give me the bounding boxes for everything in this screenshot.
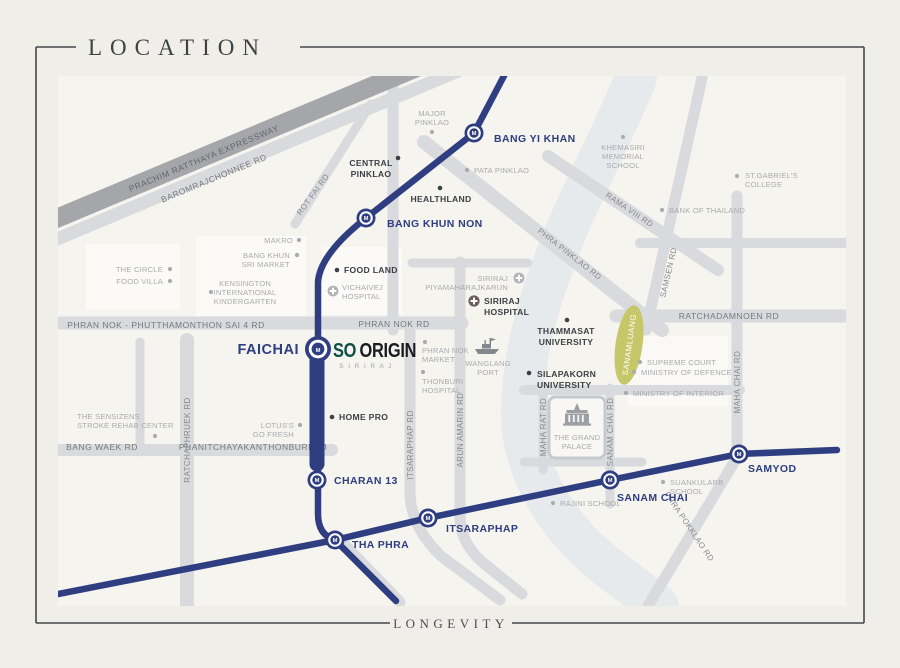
poi-dot [330,415,335,420]
poi-dot [396,156,401,161]
poi-label: FOOD VILLA [116,277,163,286]
hospital-icon [328,286,339,297]
poi-label: INTERNATIONAL [214,288,277,297]
poi-label: THAMMASAT [537,326,595,336]
poi-label: BANG KHUN [243,251,290,260]
poi-label: MAKRO [264,236,293,245]
poi-dot [295,253,299,257]
station-m: M [472,131,477,137]
poi-dot [153,434,157,438]
station-label: BANG KHUN NON [387,218,483,230]
poi-ministry-defence: MINISTRY OF DEFENCE [632,368,732,377]
poi-label: SUPREME COURT [647,358,716,367]
footer-label: LONGEVITY [393,616,509,631]
poi-dot [661,480,665,484]
poi-label: THE SENSIZENS [77,412,140,421]
poi-dot [660,208,664,212]
poi-label: UNIVERSITY [539,337,594,347]
poi-dot [438,186,443,191]
grand-palace-landmark: THE GRAND PALACE [549,397,605,458]
poi-label: SIRIRAJ [484,296,520,306]
station-label: SAMYOD [748,463,797,475]
hospital-icon [514,273,525,284]
logo-brand: SO [333,338,356,361]
poi-label: GO FRESH [253,430,294,439]
poi-label: PINKLAO [351,169,392,179]
poi-label: WANGLANG [465,359,511,368]
poi-rajini: RAJINI SCHOOL [551,499,621,508]
poi-label: HOSPITAL [342,292,381,301]
poi-dot [624,391,628,395]
poi-label: KINDERGARTEN [214,297,277,306]
station-m: M [608,478,613,484]
poi-dot [527,371,532,376]
station-label: BANG YI KHAN [494,133,576,145]
page-title: LOCATION [88,35,267,60]
poi-dot [297,238,301,242]
sanam-chai-rd-label: SANAM CHAI RD [606,398,615,467]
poi-dot [735,174,739,178]
poi-dot [638,360,642,364]
station-m: M [315,478,320,484]
poi-label: MARKET [422,355,455,364]
poi-label: VICHAIVEJ [342,283,383,292]
svg-text:SOORIGIN: SOORIGIN [333,338,416,361]
poi-label: COLLEGE [745,180,782,189]
poi-label: SCHOOL [670,487,703,496]
poi-silapakorn: SILAPAKORN UNIVERSITY [527,369,596,390]
poi-dot [551,501,555,505]
poi-label: ST.GABRIEL'S [745,171,798,180]
poi-dot [421,370,425,374]
grand-palace-label: THE GRAND [554,433,601,442]
poi-label: HOSPITAL [484,307,529,317]
poi-label: RAJINI SCHOOL [560,499,621,508]
phran-nok-label: PHRAN NOK RD [358,319,429,329]
station-label: THA PHRA [352,539,409,551]
poi-label: HOSPITAL [422,386,461,395]
poi-label: STROKE REHAB CENTER [77,421,174,430]
poi-kensington: KENSINGTON INTERNATIONAL KINDERGARTEN [209,279,276,306]
poi-label: MINISTRY OF INTERIOR [633,389,724,398]
ratchaphruek-label: RATCHAPHRUEK RD [183,397,192,482]
poi-label: BANK OF THAILAND [669,206,745,215]
maha-rat-label: MAHA RAT RD [539,398,548,456]
station-m: M [333,538,338,544]
poi-food-land: FOOD LAND [335,265,398,275]
poi-label: PATA PINKLAO [474,166,529,175]
poi-ministry-interior: MINISTRY OF INTERIOR [624,389,724,398]
poi-label: SCHOOL [606,161,639,170]
poi-label: UNIVERSITY [537,380,592,390]
phanitchayakanthonburi-label: PHANITCHAYAKANTHONBURI RD [179,442,327,452]
poi-dot [209,290,213,294]
poi-dot [168,267,172,271]
poi-label: PINKLAO [415,118,449,127]
poi-label: PIYAMAHARAJKARUN [425,283,508,292]
poi-label: MINISTRY OF DEFENCE [641,368,732,377]
grand-palace-label: PALACE [562,442,593,451]
poi-bank-of-thailand: BANK OF THAILAND [660,206,745,215]
poi-label: SILAPAKORN [537,369,596,379]
logo-brand2: ORIGIN [359,338,416,361]
poi-label: HEALTHLAND [410,194,471,204]
itsaraphap-rd-label: ITSARAPHAP RD [406,410,415,480]
poi-dot [565,318,570,323]
poi-dot [621,135,625,139]
station-label: ITSARAPHAP [446,523,518,535]
poi-label: SRI MARKET [242,260,291,269]
station-m: M [737,452,742,458]
poi-home-pro: HOME PRO [330,412,389,422]
station-label-faichai: FAICHAI [238,342,300,358]
poi-label: KHEMASIRI [601,143,645,152]
poi-label: KENSINGTON [219,279,271,288]
station-m: M [364,216,369,222]
maha-chai-label: MAHA CHAI RD [733,351,742,414]
map-svg: PRACHIM RATTHAYA EXPRESSWAY BAROMRAJCHON… [0,0,900,668]
logo-subtitle: S I R I R A J [339,363,392,370]
station-m: M [426,516,431,522]
poi-label: LOTUS'S [261,421,294,430]
poi-label: THONBURI [422,377,463,386]
location-map-slide: PRACHIM RATTHAYA EXPRESSWAY BAROMRAJCHON… [0,0,900,668]
poi-dot [430,130,434,134]
poi-dot [632,370,636,374]
poi-label: FOOD LAND [344,265,398,275]
poi-label: MAJOR [418,109,446,118]
arun-amarin-label: ARUN AMARIN RD [456,393,465,468]
map-area: PRACHIM RATTHAYA EXPRESSWAY BAROMRAJCHON… [48,57,846,606]
poi-dot [465,168,469,172]
poi-dot [168,279,172,283]
poi-supreme-court: SUPREME COURT [638,358,716,367]
poi-label: MEMORIAL [602,152,644,161]
poi-pata-pinklao: PATA PINKLAO [465,166,529,175]
bang-waek-label: BANG WAEK RD [66,442,138,452]
poi-label: THE CIRCLE [116,265,163,274]
poi-label: PHRAN NOK [422,346,469,355]
poi-label: CENTRAL [349,158,392,168]
poi-dot [335,268,340,273]
poi-label: SIRIRAJ [477,274,508,283]
poi-label: SUANKULARB [670,478,723,487]
phran-nok-sai4-label: PHRAN NOK - PHUTTHAMONTHON SAI 4 RD [67,320,264,330]
hospital-icon [468,295,479,306]
poi-dot [298,423,302,427]
station-label: CHARAN 13 [334,475,398,487]
poi-label: HOME PRO [339,412,388,422]
poi-label: PORT [477,368,499,377]
station-m: M [316,348,321,354]
poi-dot [423,340,427,344]
ratchadamnoen-label: RATCHADAMNOEN RD [679,311,779,321]
